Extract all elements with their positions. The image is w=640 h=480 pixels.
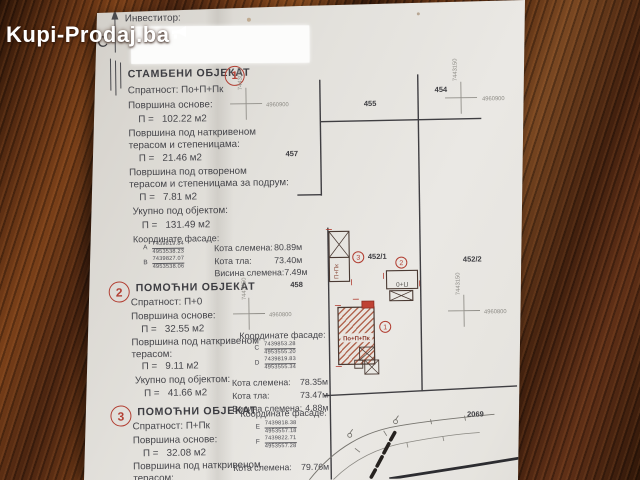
grid-x-right-label-top: 7443150 (452, 58, 458, 81)
street-name-marks (371, 433, 396, 477)
parcel-457-label: 457 (285, 149, 298, 158)
building-1-floors-label: По+П+Пк (343, 336, 370, 342)
parcel-454-label: 454 (435, 85, 448, 94)
grid-y-top-label-right: 4960900 (482, 96, 505, 102)
building-1-number: 1 (380, 321, 391, 332)
parcel-labels: 455 454 457 458 452/1 452/2 2069 (285, 84, 484, 421)
building-3-floors-label: П+Пк (334, 264, 340, 279)
watermark-text: Kupi-Prodaj.ba (6, 22, 169, 48)
building-3-number: 3 (353, 252, 364, 263)
svg-text:3: 3 (356, 255, 360, 262)
parcel-452-2-label: 452/2 (463, 254, 482, 263)
grid-x-left-label-bottom: 7443050 (242, 277, 248, 300)
photo-of-document: Инвеститор: СТАМБЕНИ ОБЈЕКАТ 1 Спратност… (0, 0, 640, 480)
road-lines (308, 414, 520, 480)
svg-text:1: 1 (383, 324, 387, 331)
megaphone-icon (171, 25, 189, 40)
building-2-floors-label: П+0 (396, 280, 409, 287)
grid-x-right-label-bottom: 7443150 (455, 272, 461, 295)
parcel-455-label: 455 (364, 99, 377, 108)
document-paper: Инвеститор: СТАМБЕНИ ОБЈЕКАТ 1 Спратност… (0, 0, 640, 480)
building-2-number: 2 (396, 257, 407, 268)
grid-x-left-label-top: 7443050 (238, 67, 244, 90)
paper-shadow: Инвеститор: СТАМБЕНИ ОБЈЕКАТ 1 Спратност… (0, 0, 640, 480)
site-plan-drawing: С (0, 0, 640, 480)
grid-labels: 7443050 7443150 7443050 7443150 4960900 … (238, 58, 508, 319)
grid-y-bottom-label-left: 4960800 (269, 312, 292, 318)
watermark: Kupi-Prodaj.ba (6, 22, 189, 48)
document-content: Инвеститор: СТАМБЕНИ ОБЈЕКАТ 1 Спратност… (0, 0, 640, 480)
svg-text:2: 2 (399, 260, 403, 267)
parcel-458-label: 458 (290, 280, 303, 289)
grid-y-bottom-label-right: 4960800 (484, 309, 507, 315)
grid-y-top-label-left: 4960900 (266, 102, 289, 108)
parcel-2069-label: 2069 (467, 409, 484, 418)
parcel-452-1-label: 452/1 (368, 252, 387, 261)
